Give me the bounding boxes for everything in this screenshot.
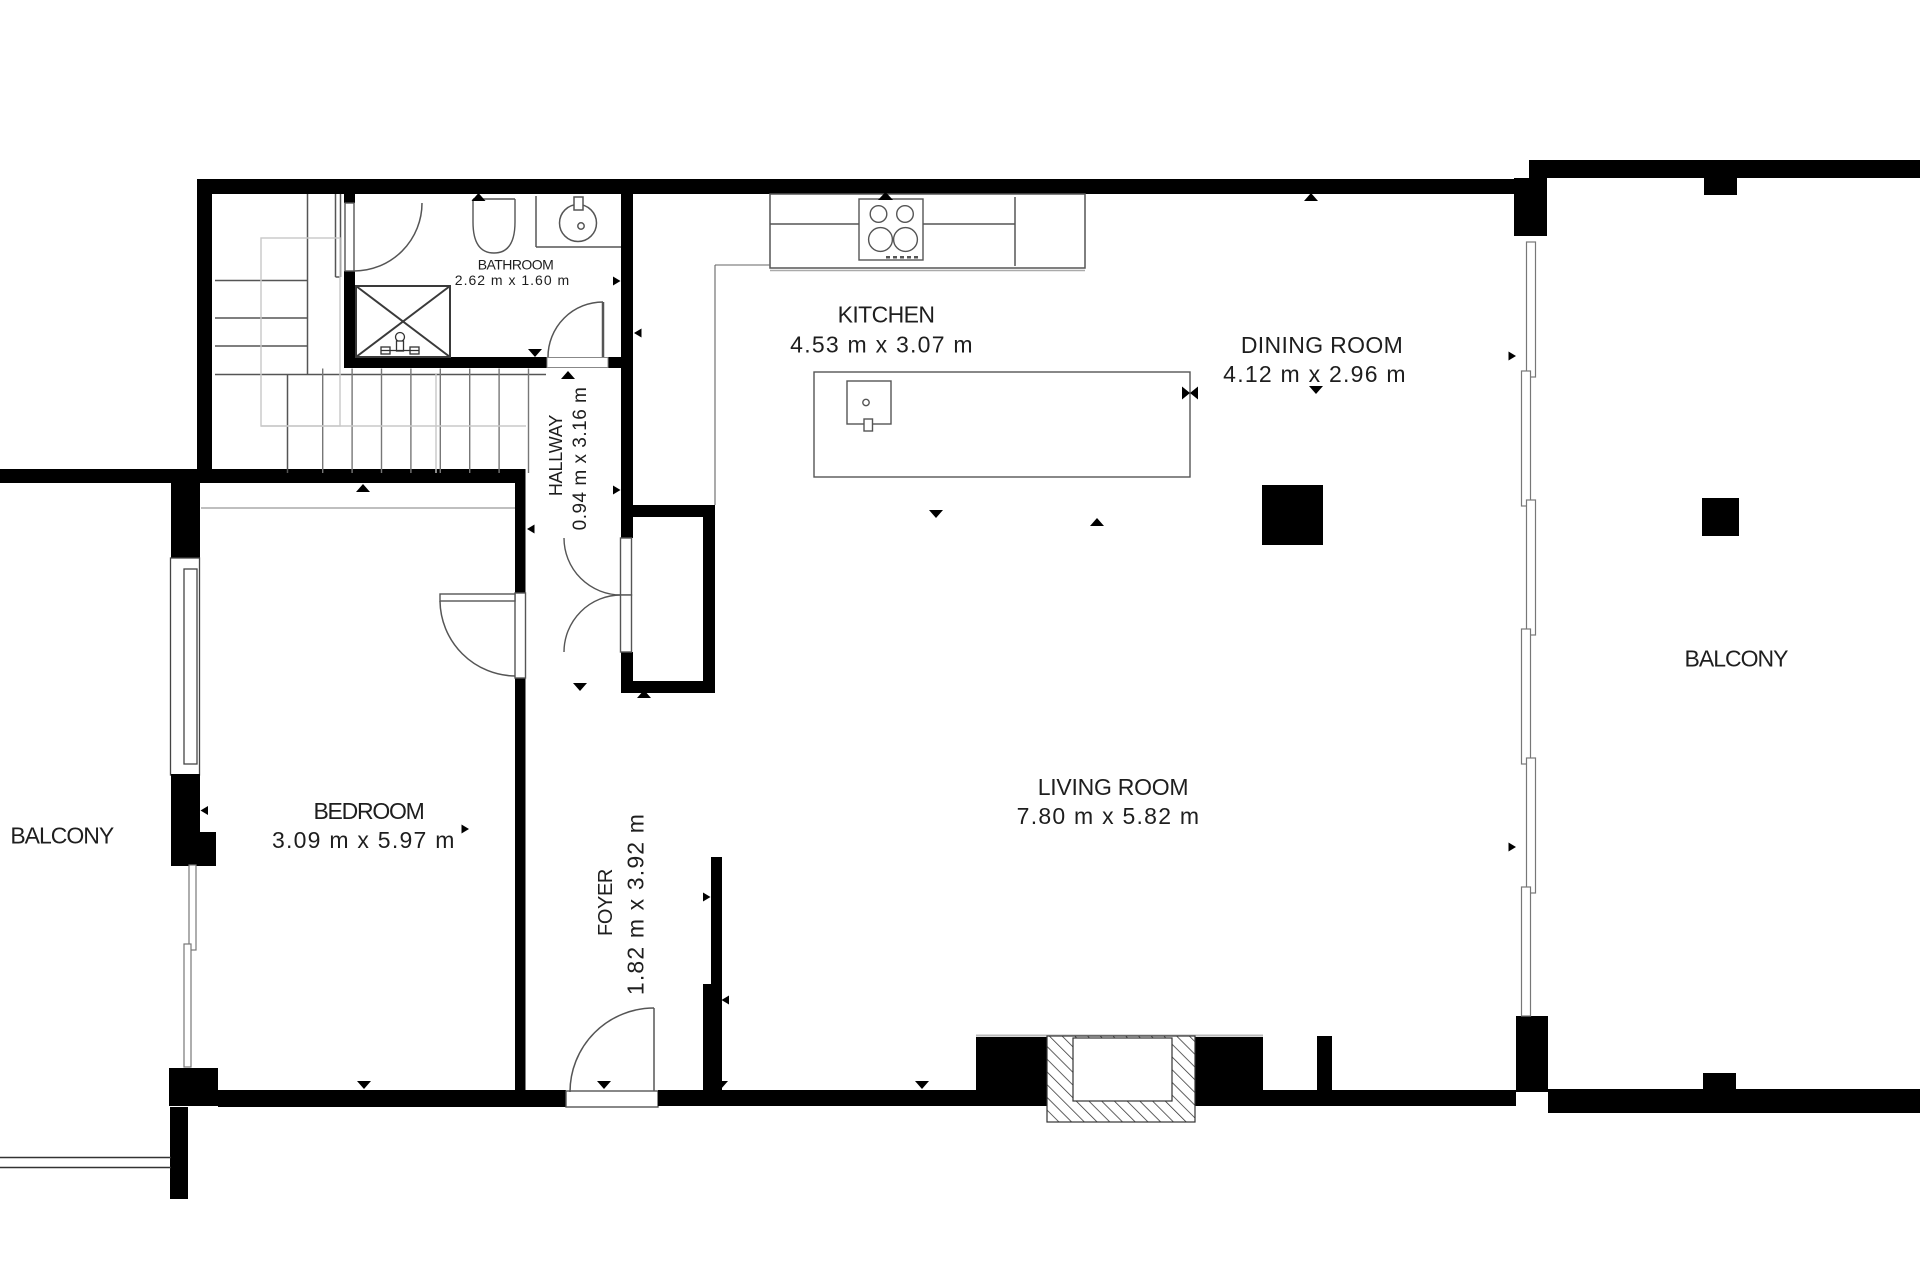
svg-text:2.62 m x 1.60 m: 2.62 m x 1.60 m [455, 272, 570, 288]
svg-text:LIVING ROOM: LIVING ROOM [1038, 774, 1189, 800]
svg-text:FOYER: FOYER [595, 869, 617, 936]
svg-text:7.80 m x 5.82 m: 7.80 m x 5.82 m [1017, 803, 1201, 829]
svg-text:DINING ROOM: DINING ROOM [1241, 332, 1403, 358]
svg-text:BEDROOM: BEDROOM [313, 798, 423, 824]
svg-text:BALCONY: BALCONY [1685, 646, 1789, 672]
svg-text:KITCHEN: KITCHEN [838, 302, 935, 328]
svg-text:4.12 m x 2.96 m: 4.12 m x 2.96 m [1223, 361, 1407, 387]
svg-text:4.53 m x 3.07 m: 4.53 m x 3.07 m [790, 332, 974, 358]
svg-text:BATHROOM: BATHROOM [478, 257, 553, 273]
svg-text:1.82 m x 3.92 m: 1.82 m x 3.92 m [623, 813, 649, 995]
svg-text:0.94 m x 3.16 m: 0.94 m x 3.16 m [570, 387, 591, 531]
svg-text:3.09 m x 5.97 m: 3.09 m x 5.97 m [272, 827, 456, 853]
svg-text:BALCONY: BALCONY [10, 823, 114, 849]
svg-text:HALLWAY: HALLWAY [546, 415, 566, 496]
